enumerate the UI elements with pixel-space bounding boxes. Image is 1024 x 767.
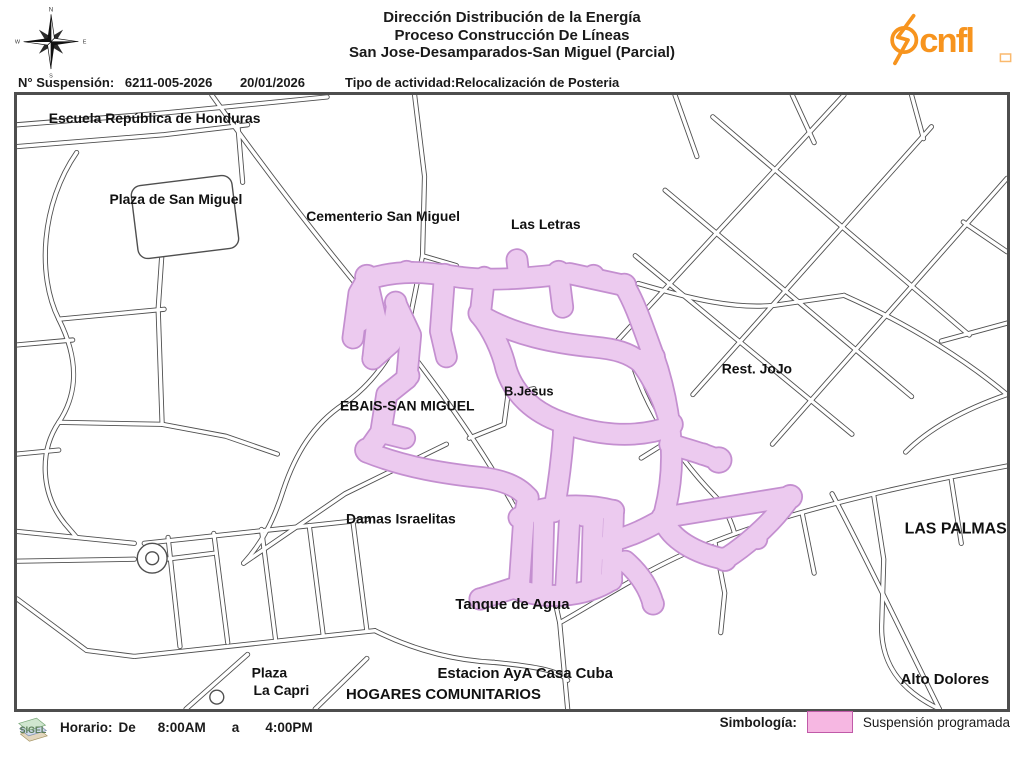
compass-w: W bbox=[15, 40, 21, 46]
horario-end: 4:00PM bbox=[265, 720, 312, 735]
legend-bar: Simbología: Suspensión programada bbox=[720, 711, 1010, 733]
horario-label: Horario: bbox=[60, 720, 113, 735]
map-label-rest-jojo: Rest. JoJo bbox=[722, 361, 792, 377]
map-label-damas-israelitas: Damas Israelitas bbox=[346, 511, 456, 527]
title-line-3: San Jose-Desamparados-San Miguel (Parcia… bbox=[160, 44, 864, 62]
map-label-las-palmas: LAS PALMAS bbox=[905, 520, 1007, 537]
map-label-la-capri: La Capri bbox=[254, 682, 310, 698]
roundabout-inner bbox=[146, 552, 159, 565]
legend-item-label: Suspensión programada bbox=[863, 715, 1010, 730]
map-label-cementerio-san-miguel: Cementerio San Miguel bbox=[306, 208, 460, 224]
title-line-1: Dirección Distribución de la Energía bbox=[160, 9, 864, 27]
map-title: Dirección Distribución de la Energía Pro… bbox=[160, 9, 864, 62]
schedule-bar: SIGEL Horario: De 8:00AM a 4:00PM bbox=[14, 711, 313, 743]
map-label-alto-dolores: Alto Dolores bbox=[901, 672, 990, 688]
map-canvas: Escuela República de HondurasPlaza de Sa… bbox=[17, 95, 1007, 709]
map-label-plaza-de-san-miguel: Plaza de San Miguel bbox=[109, 191, 242, 207]
horario-a: a bbox=[232, 720, 240, 735]
cnfl-logo: cnfl bbox=[884, 12, 1016, 68]
cnfl-lightning-icon bbox=[895, 16, 914, 64]
suspension-zone-fill bbox=[350, 260, 801, 614]
map-label-estacion-aya-casa-cuba: Estacion AyA Casa Cuba bbox=[437, 666, 613, 682]
cnfl-logo-text: cnfl bbox=[919, 22, 973, 60]
plaza-block bbox=[130, 174, 240, 259]
horario-start: 8:00AM bbox=[158, 720, 206, 735]
suspension-date: 20/01/2026 bbox=[240, 75, 305, 90]
compass-rose-icon: N S E W bbox=[12, 2, 90, 80]
small-roundabout bbox=[210, 690, 224, 704]
map-label-plaza: Plaza bbox=[252, 664, 288, 680]
compass-n: N bbox=[49, 7, 53, 14]
map-frame: Escuela República de HondurasPlaza de Sa… bbox=[14, 92, 1010, 712]
horario-de: De bbox=[119, 720, 136, 735]
sigel-logo: SIGEL bbox=[14, 711, 52, 743]
map-label-escuela-republica-de-honduras: Escuela República de Honduras bbox=[49, 110, 261, 126]
legend-swatch-suspension bbox=[807, 711, 853, 733]
sigel-logo-text: SIGEL bbox=[20, 725, 47, 735]
compass-e: E bbox=[83, 40, 87, 46]
simbologia-label: Simbología: bbox=[720, 715, 797, 730]
title-line-2: Proceso Construcción De Líneas bbox=[160, 27, 864, 45]
cnfl-logo-mark bbox=[1000, 54, 1010, 61]
map-label-las-letras: Las Letras bbox=[511, 216, 581, 232]
page: { "header": { "title_line1": "Dirección … bbox=[0, 0, 1024, 767]
activity-type: Tipo de actividad:Relocalización de Post… bbox=[345, 75, 619, 90]
map-label-hogares-comunitarios: HOGARES COMUNITARIOS bbox=[346, 687, 541, 703]
map-label-ebais-san-miguel: EBAIS-SAN MIGUEL bbox=[340, 397, 475, 413]
map-label-tanque-de-agua: Tanque de Agua bbox=[455, 597, 570, 613]
map-label-b-jesus: B.Jesus bbox=[504, 384, 554, 399]
suspension-label: N° Suspensión: bbox=[18, 75, 114, 90]
suspension-number: 6211-005-2026 bbox=[125, 75, 212, 90]
suspension-info: N° Suspensión: 6211-005-2026 20/01/2026 bbox=[18, 75, 305, 90]
